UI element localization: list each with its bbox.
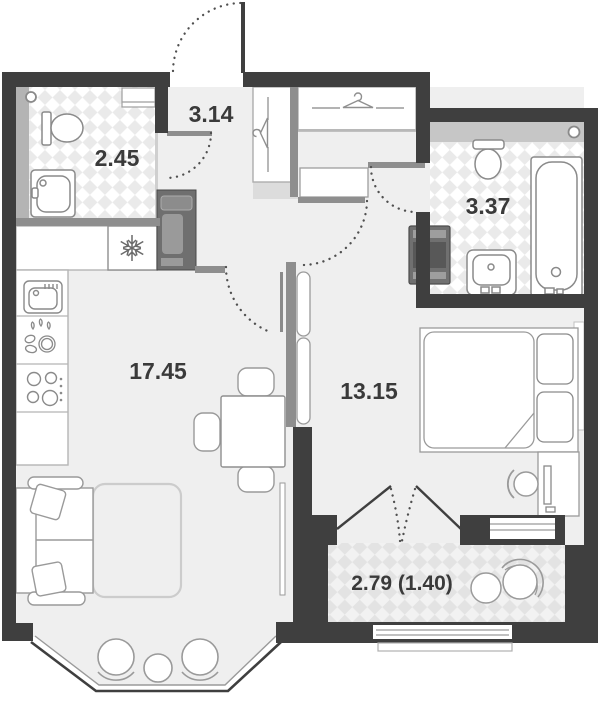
wall-hall	[290, 87, 298, 197]
door-leaf	[297, 338, 310, 424]
pillow-icon	[537, 334, 573, 384]
wall-left	[2, 72, 16, 641]
drain-icon	[26, 92, 36, 102]
balcony-chair-icon	[503, 565, 537, 599]
wet-wall-band	[430, 122, 584, 142]
wall-bath-south	[416, 294, 598, 308]
room-label-bathroom-small: 2.45	[95, 145, 140, 171]
armchair-icon	[98, 639, 134, 675]
bed-icon	[420, 328, 578, 452]
bathroom-sink-icon	[467, 250, 516, 295]
wall-divider-lower	[293, 427, 312, 622]
pillow-icon	[537, 392, 573, 442]
window-sill	[378, 643, 512, 651]
living-door-wall	[195, 266, 225, 273]
wall-balcony-jamb	[312, 515, 337, 545]
desk-icon	[538, 452, 579, 516]
cabinet-icon	[300, 168, 368, 197]
ventilation-shaft-icon	[157, 190, 196, 270]
coffee-table-icon	[144, 654, 172, 682]
room-label-balcony: 2.79 (1.40)	[351, 572, 453, 595]
floor-plan: 3.14 2.45 3.37 17.45 13.15 2.79 (1.40)	[0, 0, 600, 706]
wall-bottom-stub	[2, 623, 33, 641]
room-label-bedroom: 13.15	[340, 378, 398, 404]
wall-bath-left	[416, 212, 430, 306]
dining-table-icon	[221, 396, 285, 467]
console-icon	[280, 483, 285, 595]
wet-wall-band	[16, 87, 29, 218]
chair-icon	[238, 466, 274, 492]
wall-balcony-left	[312, 545, 328, 622]
entrance-door-leaf	[241, 2, 245, 73]
wall-bath-small	[155, 72, 168, 133]
chair-icon	[238, 368, 274, 396]
wall-step	[416, 87, 430, 163]
chair-icon	[194, 413, 220, 451]
drain-icon	[569, 127, 580, 138]
bedroom-door-leaf	[298, 197, 365, 203]
window	[373, 625, 512, 639]
bathroom-sink-icon	[31, 170, 75, 217]
room-label-kitchen-living: 17.45	[129, 358, 187, 384]
bathroom-door-leaf	[167, 131, 212, 136]
sofa-icon	[16, 477, 93, 605]
wall	[16, 218, 160, 226]
door-leaf	[297, 272, 310, 336]
desk-chair-icon	[514, 472, 538, 496]
wall-bath-top	[430, 108, 598, 122]
tv-icon	[280, 272, 283, 332]
shelf-icon	[122, 88, 155, 107]
wall-living-bedroom	[286, 262, 296, 427]
wall-top-right	[243, 72, 430, 87]
room-label-entrance-hall: 3.14	[189, 101, 234, 127]
pillow-icon	[31, 561, 66, 596]
window	[490, 518, 555, 539]
floor-plan-svg: 3.14 2.45 3.37 17.45 13.15 2.79 (1.40)	[0, 0, 600, 706]
armchair-icon	[182, 639, 218, 675]
wardrobe-icon	[253, 87, 292, 182]
kitchen-sink-icon	[24, 281, 62, 313]
room-label-bathroom-large: 3.37	[466, 193, 511, 219]
bathtub-icon	[531, 157, 582, 296]
balcony-table-icon	[471, 573, 501, 603]
wall-top-left	[2, 72, 170, 87]
